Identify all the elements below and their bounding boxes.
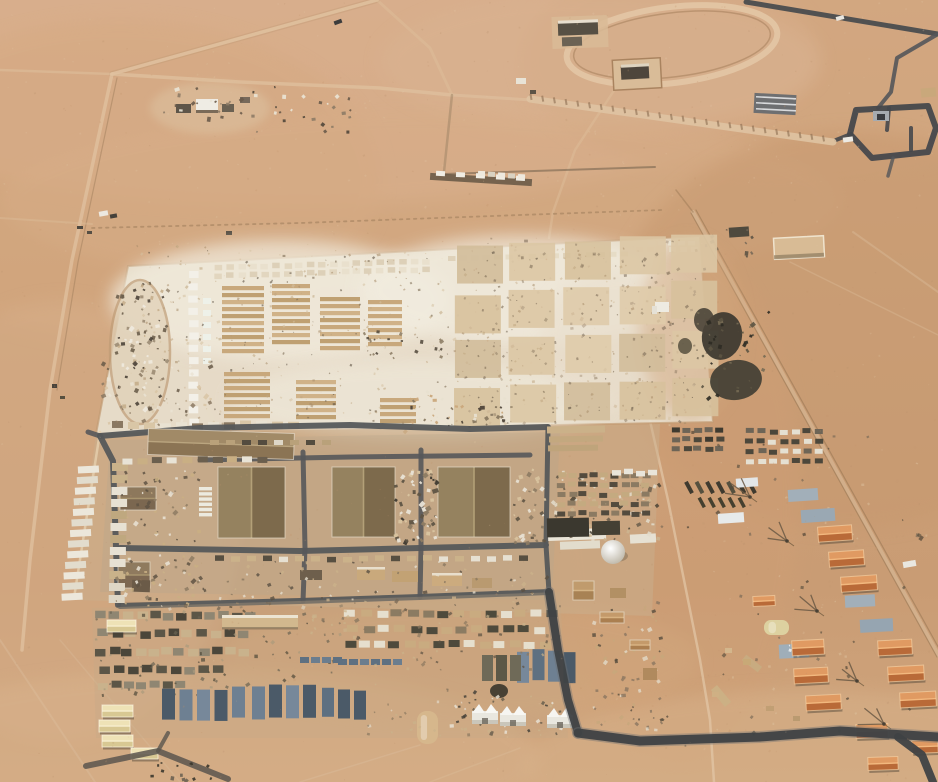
tent-city	[96, 235, 740, 440]
screenshot-root	[0, 0, 938, 782]
industrial-zone	[61, 424, 661, 616]
aerial-photo-canvas	[0, 0, 938, 782]
